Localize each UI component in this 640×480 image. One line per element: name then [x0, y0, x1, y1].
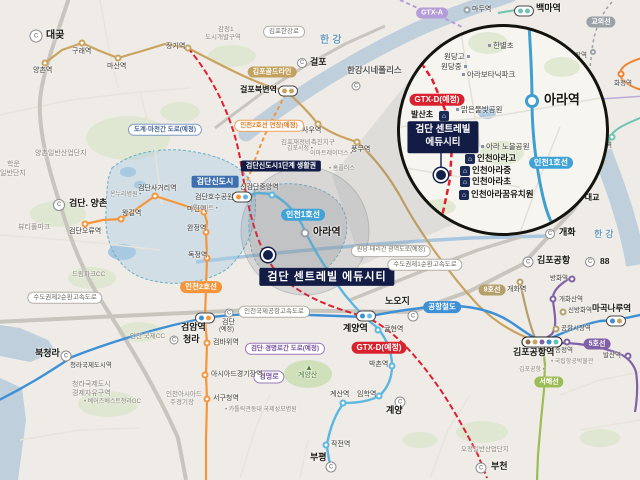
interchange-glyph: C: [57, 202, 61, 208]
line-badge-incheon1: 인천1호선: [529, 157, 573, 169]
station-marker: [560, 309, 567, 316]
school-label: 한별초: [486, 42, 514, 50]
expressway-badge: 수도권제1순환고속도로: [387, 259, 462, 271]
station-label: 검암역: [181, 323, 206, 333]
station-marker: [569, 276, 576, 283]
gtxd-badge: GTX-D(예정): [352, 342, 407, 354]
map-label: 걸포: [310, 58, 327, 68]
interchange-glyph: C: [300, 60, 304, 66]
interchange-icon: C: [30, 30, 43, 43]
project-title-line1: 검단 센트레빌: [415, 124, 470, 137]
station-label: 장기역: [166, 43, 185, 51]
station-marker: [269, 192, 276, 199]
station-marker: [375, 327, 382, 334]
poi-label: • 베어즈베스트청라GC: [84, 399, 141, 406]
poi-label: 이마트레이더스 •: [310, 151, 352, 158]
station-marker: [564, 339, 571, 346]
school-glyph: ⌂: [463, 179, 467, 186]
interchange-glyph: C: [479, 465, 483, 471]
station-marker: [42, 60, 49, 67]
road-badge: 김포한강로: [263, 26, 305, 38]
map-label: 부천: [491, 462, 508, 472]
interchange-icon: C: [326, 462, 337, 473]
station-label: 마곡나루역: [592, 304, 631, 313]
line-badge-incheon1: 인천1호선: [281, 209, 325, 221]
map-label: 검단: [222, 319, 235, 327]
station-marker: [152, 193, 159, 200]
interchange-icon: C: [61, 351, 72, 362]
school-glyph: ⌂: [468, 156, 472, 163]
planned-road-badge: 원당·태리간 광역도로(예정): [351, 245, 431, 257]
station-marker: [204, 396, 211, 403]
station-label: 사우역: [302, 127, 321, 135]
station-label: 양촌역: [33, 67, 52, 75]
transfer-station-pill: [278, 86, 298, 97]
gtxd-badge: GTX-D(예정): [410, 94, 465, 106]
station-marker: [553, 326, 560, 333]
station-label: 신방화역: [568, 307, 592, 314]
map-label: 계양: [386, 406, 403, 416]
planned-road-badge: 도계·마천간 도로(예정): [128, 124, 202, 136]
school-glyph: ⌂: [462, 192, 466, 199]
han-river-label: 한강: [320, 35, 344, 46]
interchange-glyph: C: [227, 310, 231, 316]
station-label: 신검단중앙역: [240, 184, 279, 192]
project-name-badge: 검단 센트레빌 에듀시티: [259, 268, 394, 286]
station-label: 검바위역: [213, 339, 239, 347]
station-label: 방화역: [550, 275, 568, 282]
school-label: 원당고: [444, 53, 472, 61]
interchange-icon: C: [585, 257, 595, 267]
line-badge-line9: 9호선: [479, 284, 506, 295]
project-title-box: 검단 센트레빌에듀시티: [407, 121, 478, 153]
school-icon: ⌂: [460, 177, 470, 187]
area-label: 오정일반산업단지: [461, 446, 509, 453]
poi-label: 인천 국제CC: [130, 333, 165, 340]
area-label: 뷰티풀파크: [18, 224, 50, 232]
school-glyph: ⌂: [442, 113, 446, 120]
station-marker: [625, 353, 632, 360]
ara-station-label: 아라역: [544, 93, 580, 107]
school-glyph: ⌂: [463, 168, 467, 175]
station-label: 아시아드경기장역: [211, 371, 263, 379]
station-label: 검단사거리역: [138, 185, 177, 193]
interchange-glyph: C: [411, 313, 415, 319]
school-label: 인천아라고: [477, 154, 516, 163]
interchange-glyph: C: [329, 464, 333, 470]
map-label: 검단. 양촌: [69, 199, 107, 209]
school-label: 인천아라초: [472, 177, 511, 186]
interchange-icon: C: [476, 463, 487, 474]
station-label: 계산역: [330, 391, 349, 399]
station-label: 마산역: [107, 63, 126, 71]
station-label: 검단오류역: [69, 228, 101, 236]
interchange-icon: C: [170, 336, 179, 345]
school-label: 인천아라중: [472, 166, 511, 175]
interchange-icon: C: [53, 199, 65, 211]
station-marker: [202, 372, 209, 379]
interchange-icon: C: [408, 311, 419, 322]
station-label: 개화역: [507, 286, 526, 294]
station-marker: [609, 134, 616, 141]
area-label: 학운: [7, 161, 20, 169]
station-label: 개화산역: [559, 296, 583, 303]
station-label: 작전역: [331, 441, 350, 449]
map-label-daegot: 대곶: [46, 30, 64, 41]
area-label: 한강시네폴리스: [347, 66, 402, 75]
station-marker: [464, 7, 471, 14]
poi-label: • 국립항공박물관: [551, 359, 593, 366]
station-label: 걸포북변역: [240, 86, 277, 95]
area-label: 일반단지: [0, 170, 26, 178]
school-icon: ⌂: [465, 154, 475, 164]
project-title-line2: 에듀시티: [415, 137, 470, 150]
park-label: 아라보타닉파크: [460, 71, 515, 79]
station-label: 청라국제도시역: [70, 362, 112, 369]
project-location-dot: [261, 248, 275, 262]
planned-road-badge: 검단·경명로간 도로(예정): [245, 343, 325, 355]
transfer-station-pill: [606, 316, 626, 327]
map-label: 청라: [183, 335, 200, 345]
poi-label: • 카톨릭관동대 국제성모병원: [225, 407, 297, 414]
line-badge-gyoui: 교외선: [586, 16, 615, 27]
gtxa-badge: GTX-A: [416, 7, 448, 18]
station-marker: [79, 40, 86, 47]
station-marker: [204, 340, 211, 347]
map-label: 김포공항: [537, 256, 570, 266]
geomdan-newtown-badge: 검단신도시: [192, 176, 239, 188]
station-label: 화정역: [614, 80, 632, 87]
station-label: 풍무역: [351, 146, 370, 154]
interchange-glyph: C: [64, 353, 68, 359]
ara-station-label: 아라역: [313, 227, 341, 238]
planned-line-badge: 인천2호선 연장(예정): [234, 120, 304, 132]
interchange-glyph: C: [34, 33, 38, 39]
inset-magnifier-circle: GTX-D(예정)발산초⌂검단 센트레빌에듀시티한별초원당고원당중아라보타닉파크…: [397, 24, 609, 236]
transfer-station-pill: [514, 6, 534, 17]
area-label: 감정1: [218, 26, 234, 33]
interchange-icon: C: [352, 82, 361, 91]
school-label: 원당중: [441, 63, 469, 71]
station-label: 왕길역: [122, 210, 141, 218]
station-label: 발산역: [603, 352, 621, 359]
interchange-glyph: C: [526, 259, 530, 265]
poi-label: 인천아시아드: [166, 391, 202, 398]
station-label: 마두역: [472, 6, 491, 14]
school-icon: ⌂: [439, 111, 449, 121]
expressway-badge: 인천국제공항고속도로: [238, 306, 310, 318]
poi-label: 롯데마트 •: [192, 206, 218, 213]
station-marker: [517, 279, 524, 286]
map-label: 노오지: [385, 297, 410, 307]
station-marker: [185, 45, 192, 52]
line-badge-line5: 5호선: [584, 338, 611, 349]
area-label: 경제자유구역: [72, 390, 111, 398]
interchange-glyph: C: [588, 259, 592, 265]
area-label: 양촌일반산업단지: [35, 150, 87, 158]
line-badge-seohae: 서해선: [534, 376, 563, 387]
area-label: 도시개발구역: [205, 34, 241, 41]
station-marker: [618, 71, 625, 78]
location-map: C대곶양촌역구래역마산역장기역양촌일반산업단지학운일반단지도계·마천간 도로(예…: [0, 0, 640, 480]
map-label: 88: [600, 257, 609, 266]
gimpo-airport-station-pill: [522, 337, 563, 348]
line-badge-incheon2: 인천2호선: [180, 281, 222, 293]
poi-label: 김포시청 •: [287, 146, 313, 153]
poi-label: 온누리병원 •: [110, 192, 141, 199]
poi-label: 드림파크CC: [72, 271, 105, 278]
school-icon: ⌂: [459, 190, 469, 200]
school-icon: ⌂: [460, 166, 470, 176]
ara-station-marker: [301, 229, 310, 238]
station-label: 송정역: [555, 347, 573, 354]
project-location-dot: [434, 168, 448, 182]
station-marker: [323, 442, 330, 449]
station-label: 박촌역: [369, 361, 388, 369]
station-label: 김포공항역: [513, 348, 554, 358]
map-label: 부평: [310, 453, 327, 463]
poi-label: • 홈플러스: [329, 166, 355, 173]
station-label: 독정역: [188, 252, 207, 260]
station-marker: [550, 296, 557, 303]
station-marker: [115, 55, 122, 62]
district-badge: 검단신도시1단계 생활권: [241, 160, 321, 171]
school-label: 인천아라꿈유치원: [471, 190, 534, 199]
station-label: 귤현역: [384, 326, 403, 334]
station-marker: [340, 400, 347, 407]
station-label: 백마역: [536, 4, 561, 14]
interchange-icon: C: [523, 257, 534, 268]
station-label: 서구청역: [213, 395, 239, 403]
transfer-station-pill: [232, 192, 252, 203]
line-badge-arex: 공항철도: [423, 301, 461, 313]
station-label: 완정역: [187, 225, 206, 233]
inset-labels-layer: GTX-D(예정)발산초⌂검단 센트레빌에듀시티한별초원당고원당중아라보타닉파크…: [400, 27, 606, 233]
station-label: 계양역: [343, 324, 368, 334]
school-label: 발산초: [411, 111, 433, 120]
expressway-badge: 수도권제2순환고속도로: [27, 292, 102, 304]
station-marker: [389, 363, 396, 370]
poi-label: 김포공항 •: [519, 367, 545, 374]
interchange-icon: C: [297, 58, 307, 68]
interchange-glyph: C: [354, 83, 358, 89]
line-badge-goldline: 김포골드라인: [248, 66, 297, 77]
mountain-label: 계양산: [298, 372, 317, 380]
station-label: 공항시장역: [561, 325, 591, 332]
interchange-icon: C: [225, 309, 234, 318]
map-label: (예정): [219, 327, 234, 334]
area-label: 청라국제도시: [72, 381, 111, 389]
park-label: 맑은물빛공원: [454, 106, 502, 114]
transfer-station-pill: [356, 311, 376, 322]
station-marker: [354, 139, 361, 146]
station-label: 임학역: [357, 391, 376, 399]
station-label: 구래역: [72, 48, 91, 56]
station-marker: [82, 221, 89, 228]
interchange-glyph: C: [172, 337, 176, 343]
map-label: 북청라: [35, 349, 60, 359]
poi-label: 주경기장: [170, 399, 194, 406]
ara-station-marker: [525, 94, 539, 108]
station-marker: [376, 393, 383, 400]
park-label: 아라 노을공원: [479, 143, 529, 151]
